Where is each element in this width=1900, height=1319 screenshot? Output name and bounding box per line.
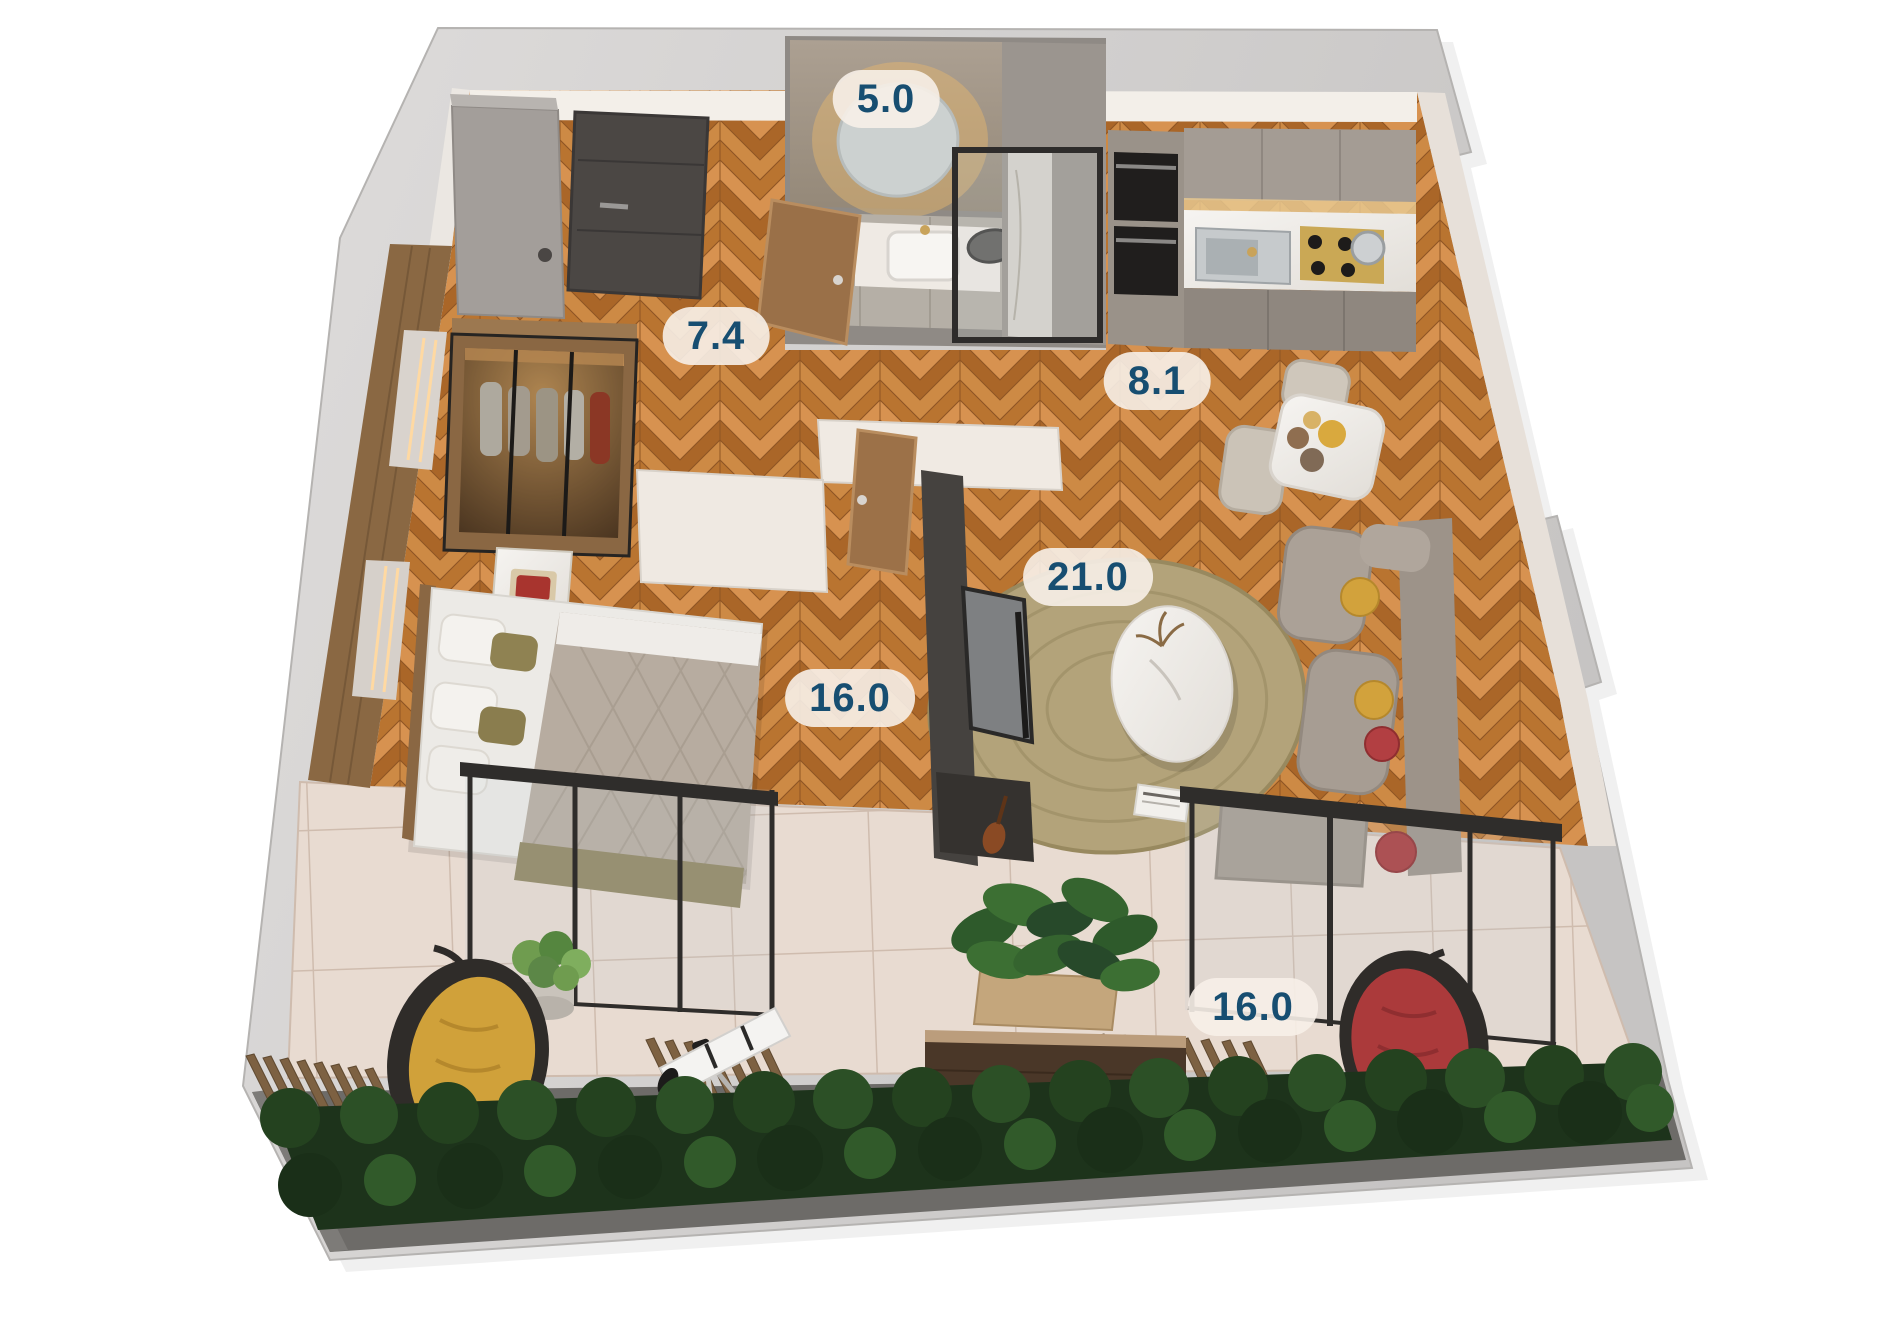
- floorplan-render: [0, 0, 1900, 1319]
- table-plate: [1318, 420, 1346, 448]
- table-bowl: [1300, 448, 1324, 472]
- closet-handle: [538, 248, 552, 262]
- entry-door: [568, 112, 708, 298]
- olive-pillow: [477, 705, 527, 746]
- faucet: [920, 225, 930, 235]
- room-label-balcony: 16.0: [1188, 978, 1318, 1036]
- vanity-sink: [888, 232, 958, 280]
- room-label-living-room: 21.0: [1023, 548, 1153, 606]
- room-label-bedroom: 16.0: [785, 669, 915, 727]
- oven-lower: [1114, 226, 1178, 296]
- entry-area: [450, 94, 708, 318]
- wardrobe: [444, 318, 637, 556]
- red-pillow: [1365, 727, 1399, 761]
- shower-glass: [955, 150, 1100, 340]
- floorplan-canvas: 5.0 7.4 8.1 21.0 16.0 16.0: [0, 0, 1900, 1319]
- bedroom-north-wall: [637, 470, 827, 592]
- room-label-kitchen-dining: 8.1: [1104, 352, 1211, 410]
- bathroom-door-open: [758, 200, 860, 344]
- kitchen-faucet: [1247, 247, 1257, 257]
- room-label-hallway: 7.4: [663, 307, 770, 365]
- yellow-pillow: [1355, 681, 1393, 719]
- yellow-pillow: [1341, 578, 1379, 616]
- kitchen: [1108, 128, 1416, 352]
- table-vase: [1303, 411, 1321, 429]
- upper-cabinets: [1184, 128, 1416, 202]
- olive-pillow: [489, 631, 539, 672]
- entry-door-handle: [600, 205, 628, 207]
- room-label-bathroom: 5.0: [833, 70, 940, 128]
- bathroom-door-handle: [833, 275, 843, 285]
- sofa-seat: [1295, 647, 1401, 797]
- base-cabinets: [1184, 288, 1416, 352]
- table-vase: [1287, 427, 1309, 449]
- wardrobe-glass: [459, 348, 624, 538]
- entry-closet: [452, 106, 564, 318]
- door-handle: [857, 495, 867, 505]
- oven-upper: [1114, 152, 1178, 222]
- cooking-pot: [1352, 232, 1384, 264]
